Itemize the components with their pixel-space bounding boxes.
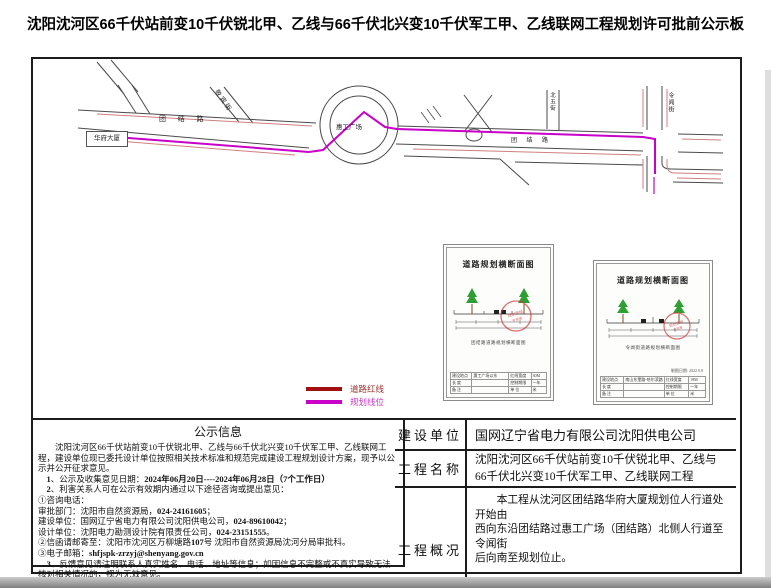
notice-line: 审批部门：沈阳市自然资源局，024-24161605； <box>38 506 398 517</box>
tuanjie-road-label-west: 团 结 路 <box>159 114 209 124</box>
inset-2-title: 道路规划横断面图 <box>597 275 709 286</box>
approval-stamp-icon: 规划审核 专用章 <box>664 313 690 339</box>
legend-plan-line: 规划线位 <box>306 395 384 408</box>
construction-unit-label: 建设单位 <box>395 420 467 451</box>
public-notice-box: 公示信息 沈阳沈河区66千伏站前变10千伏锐北甲、乙线与66千伏北兴变10千伏军… <box>33 420 405 567</box>
plan-map: 华府大厦 团 结 路 惠工广场 团 结 路 敬宾街 北五街 令闻街 道路红线 规… <box>33 59 736 420</box>
notice-line: 沈阳沈河区66千伏站前变10千伏锐北甲、乙线与66千伏北兴变10千伏军工甲、乙线… <box>38 442 398 474</box>
inset-2-inner-frame: 道路规划横断面图 <box>596 263 710 402</box>
project-name-label: 工程名称 <box>395 451 467 488</box>
approval-stamp-icon: 规划审核 专用章 <box>501 301 531 331</box>
notice-line: 建设单位：国网辽宁省电力有限公司沈阳供电公司，024-89610042； <box>38 516 398 527</box>
huigong-square-label: 惠工广场 <box>336 121 362 131</box>
jingbin-street-label: 敬宾街 <box>213 87 236 114</box>
tree-icon <box>617 299 629 323</box>
legend-redline-label: 道路红线 <box>350 383 384 395</box>
construction-unit-value: 国网辽宁省电力有限公司沈阳供电公司 <box>467 420 736 451</box>
inset-1-caption: 团结路道路规划横断面图 <box>447 340 550 346</box>
page-title: 沈阳沈河区66千伏站前变10千伏锐北甲、乙线与66千伏北兴变10千伏军工甲、乙线… <box>0 13 771 34</box>
project-name-value: 沈阳沈河区66千伏站前变10千伏锐北甲、乙线与 66千伏北兴变10千伏军工甲、乙… <box>467 451 736 488</box>
notice-line: 1、公示及收集意见日期：2024年06月20日----2024年06月28日（7… <box>38 474 398 485</box>
planned-route-line <box>90 112 655 194</box>
huafu-building-box: 华府大厦 <box>86 131 128 147</box>
legend-redline-swatch <box>306 387 342 391</box>
cross-section-inset-1: 道路规划横断面图 <box>443 244 554 401</box>
inset-1-inner-frame: 道路规划横断面图 <box>446 247 551 398</box>
legend-planline-label: 规划线位 <box>350 396 384 408</box>
tuanjie-road-label-east: 团 结 路 <box>511 135 552 144</box>
beiwu-street-label: 北五街 <box>548 92 556 122</box>
inset-1-drawing: 规划审核 专用章 <box>450 280 547 338</box>
huafu-building-label: 华府大厦 <box>94 135 120 142</box>
notice-body: 沈阳沈河区66千伏站前变10千伏锐北甲、乙线与66千伏北兴变10千伏军工甲、乙线… <box>38 442 398 588</box>
notice-line: ①咨询电话： <box>38 495 398 506</box>
inset-1-info-table: 建设地点惠工广场以东红线宽度30M长 度控制期限一年备 注单 位米 <box>450 372 547 394</box>
scan-edge-bottom <box>0 577 771 588</box>
notice-board-page: 沈阳沈河区66千伏站前变10千伏锐北甲、乙线与66千伏北兴变10千伏军工甲、乙线… <box>0 0 771 588</box>
tree-icon <box>673 299 685 323</box>
inset-2-drawing: 规划审核 专用章 <box>603 293 703 343</box>
notice-title: 公示信息 <box>38 423 398 440</box>
lingwen-street-label: 令闻街 <box>666 92 675 128</box>
inset-2-caption: 令闻街道路规划横断面图 <box>597 345 709 351</box>
notice-line: 2、利害关系人可在公示有效期内通过以下途径咨询或提出意见： <box>38 484 398 495</box>
inset-2-info-table: 建设地点南山东堡路-哈尔滨路红线宽度19M长 度控制期限一年备 注单 位米 <box>600 376 706 398</box>
notice-line: 设计单位：沈阳电力勘测设计院有限责任公司，024-23151555。 <box>38 527 398 538</box>
map-legend: 道路红线 规划线位 <box>306 382 384 408</box>
inset-2-date: 制图日期: 2022.9.8 <box>671 368 703 374</box>
tree-icon <box>466 288 478 314</box>
notice-line: ②信函请邮寄至：沈阳市沈河区万柳塘路107号 沈阳市自然资源局沈河分局审批科。 <box>38 537 398 548</box>
project-info-table: 建设单位 国网辽宁省电力有限公司沈阳供电公司 工程名称 沈阳沈河区66千伏站前变… <box>395 420 736 565</box>
cross-section-inset-2: 道路规划横断面图 <box>593 260 713 405</box>
legend-road-redline: 道路红线 <box>306 382 384 395</box>
scan-edge-right <box>765 70 771 577</box>
notice-line: ③电子邮箱：shfjspk-zrzyj@shenyang.gov.cn <box>38 548 398 559</box>
board-frame: 华府大厦 团 结 路 惠工广场 团 结 路 敬宾街 北五街 令闻街 道路红线 规… <box>31 57 742 574</box>
project-overview-value: 本工程从沈河区团结路华府大厦规划位人行道处开始由 西向东沿团结路过惠工广场（团结… <box>467 488 736 588</box>
inset-1-title: 道路规划横断面图 <box>447 259 550 270</box>
project-overview-label: 工程概况 <box>395 488 467 588</box>
legend-planline-swatch <box>306 400 342 404</box>
